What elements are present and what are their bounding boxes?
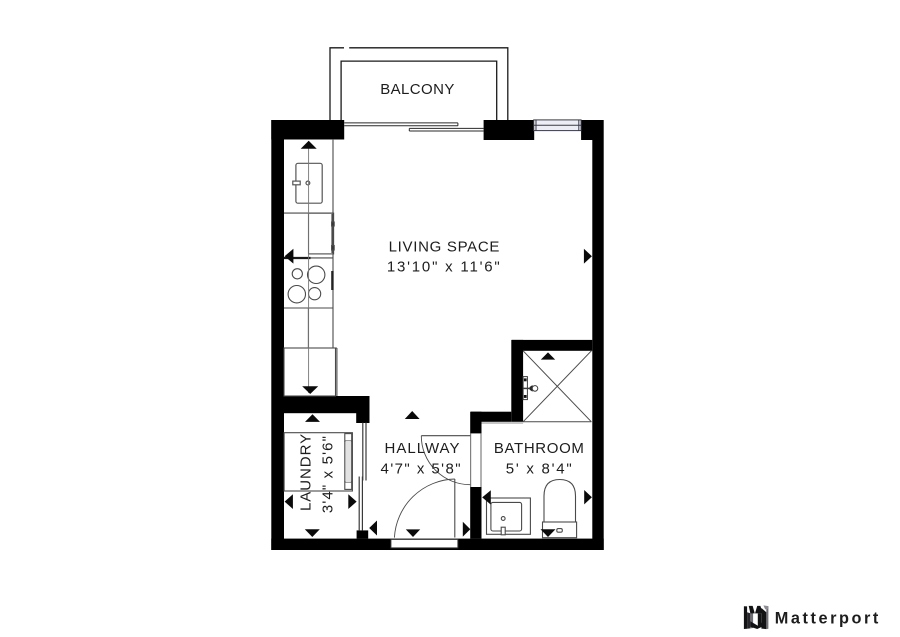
svg-text:3'4" x 5'6": 3'4" x 5'6"	[319, 435, 336, 513]
svg-text:BATHROOM: BATHROOM	[494, 440, 585, 457]
svg-text:HALLWAY: HALLWAY	[385, 440, 461, 457]
svg-text:Matterport: Matterport	[775, 610, 881, 628]
svg-text:LIVING SPACE: LIVING SPACE	[389, 239, 501, 256]
svg-text:5' x 8'4": 5' x 8'4"	[506, 461, 574, 478]
svg-text:13'10" x 11'6": 13'10" x 11'6"	[387, 259, 502, 276]
svg-text:LAUNDRY: LAUNDRY	[298, 433, 315, 511]
svg-text:BALCONY: BALCONY	[380, 81, 455, 98]
svg-text:4'7" x 5'8": 4'7" x 5'8"	[381, 461, 463, 478]
